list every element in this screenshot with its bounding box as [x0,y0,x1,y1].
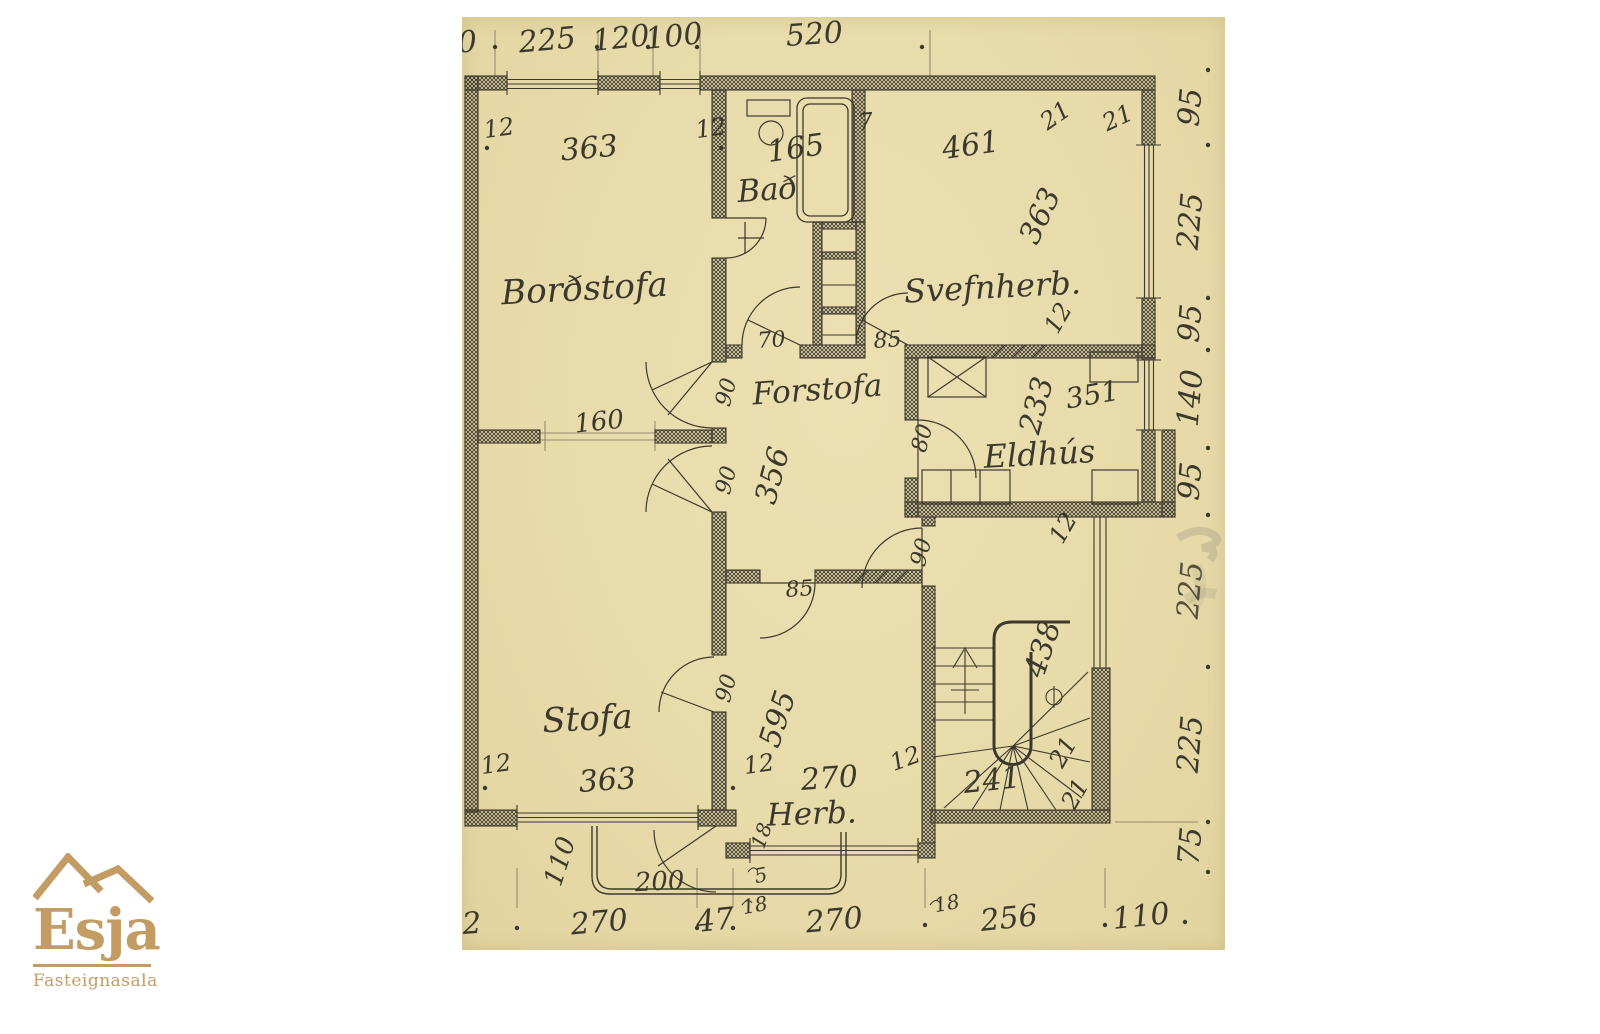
logo-subtitle: Fasteignasala [33,971,183,991]
stove-icon [928,357,986,397]
dim-wall-7: 7 [856,107,874,136]
dim-wall-12: 12 [1038,298,1078,338]
dim-bottom-3: 18 [740,891,769,919]
dim-right-1: 225 [1171,191,1211,252]
logo-name: Esja [33,902,183,958]
dim-right-6: 225 [1171,714,1211,775]
dim-porch-height: 110 [538,833,582,889]
dim-forstofa-height: 356 [749,443,798,507]
dim-door-80: 80 [907,422,938,456]
dim-top-2: 120 [591,18,652,59]
dim-bad-width: 165 [765,127,827,170]
dim-eldhus-height: 233 [1012,373,1061,438]
dim-door-90: 90 [711,672,742,706]
dim-eldhus-width: 351 [1063,374,1121,416]
dim-wall-21: 21 [1055,774,1095,815]
dim-right-4: 95 [1171,461,1209,502]
floorplan-paper: Borðstofa Bað Svefnherb. Forstofa Eldhús… [462,17,1225,950]
dim-right-5: 225 [1171,560,1211,621]
dim-door-85: 85 [873,327,903,354]
dim-right-2: 95 [1171,303,1209,344]
dim-door-90: 90 [711,376,742,410]
dim-svefnherb-width: 461 [939,124,1002,167]
logo-rule [33,964,151,967]
dim-bottom-6: 256 [978,898,1040,939]
dim-door-90: 90 [711,464,742,498]
dim-stofa-width: 363 [578,761,638,800]
screenshot-root: Borðstofa Bað Svefnherb. Forstofa Eldhús… [0,0,1600,1034]
dim-svefnherb-height: 363 [1012,183,1068,250]
dim-herb-height: 595 [752,686,803,751]
dim-door-85: 85 [785,576,815,603]
dim-top-4: 520 [785,17,845,54]
room-label-bad: Bað [735,170,798,210]
dim-top-1: 225 [516,21,577,61]
room-label-forstofa: Forstofa [750,368,883,413]
dim-bottom-0: 92 [462,906,483,944]
dim-porch-width: 200 [633,866,685,899]
dim-door-70: 70 [757,327,787,354]
dim-wall-21: 21 [1034,95,1076,136]
porch-steps [592,826,846,894]
dim-stair-height: 438 [1017,616,1068,682]
dim-top-3: 100 [644,17,705,57]
dim-wall-21: 21 [1043,732,1083,773]
room-label-eldhus: Eldhús [982,432,1097,476]
room-label-bordstofa: Borðstofa [499,265,668,314]
dim-opening-width: 160 [573,405,626,440]
dim-sill-5: 5 [752,862,769,888]
dim-bottom-4: 270 [803,901,864,941]
dim-right-0: 95 [1171,87,1209,128]
dim-bottom-1: 270 [568,903,629,943]
dim-door-90: 90 [906,536,937,570]
floorplan-drawing: Borðstofa Bað Svefnherb. Forstofa Eldhús… [462,17,1225,950]
dim-right-7: 75 [1171,826,1209,867]
dim-right-3: 140 [1171,368,1211,428]
dim-wall-21: 21 [1097,99,1137,138]
dim-stair-width: 241 [961,760,1023,801]
dim-wall-12: 12 [742,748,776,780]
dim-bottom-7: 110 [1111,896,1172,937]
room-label-stofa: Stofa [541,697,633,742]
dim-bottom-2: 47 [693,901,737,940]
dim-wall-12: 12 [886,740,924,777]
dim-wall-12: 12 [482,112,516,144]
dim-wall-12: 12 [694,112,728,144]
dim-herb-width: 270 [799,759,860,798]
dim-bottom-5: 18 [932,889,961,917]
dim-wall-12: 12 [479,748,513,780]
dim-bordstofa-width: 363 [559,129,619,169]
dim-top-0: 0 [462,24,478,60]
esja-logo: Esja Fasteignasala [33,853,183,991]
room-label-herb: Herb. [765,794,857,833]
